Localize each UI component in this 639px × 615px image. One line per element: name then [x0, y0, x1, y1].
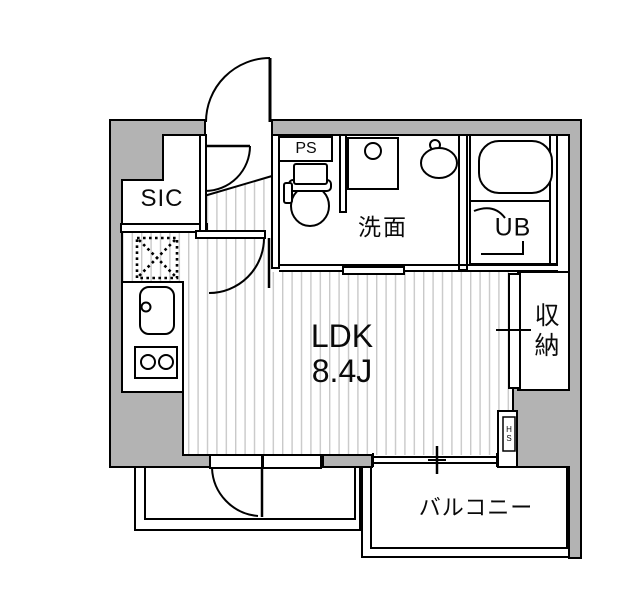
toilet-icon — [284, 164, 331, 226]
washroom-label: 洗面 — [358, 208, 408, 242]
sliding-door — [343, 267, 404, 274]
wash-basin-icon — [421, 140, 457, 178]
washing-machine-pan-icon — [348, 138, 398, 189]
balcony-label: バルコニー — [419, 490, 534, 522]
wall-hall-washroom — [272, 135, 279, 268]
gas-stove-icon — [135, 347, 177, 378]
ldk-fixed-panel — [263, 455, 321, 468]
porch-door-icon — [212, 468, 262, 517]
wall-hall-sic — [200, 135, 206, 232]
entrance-door-icon — [206, 58, 270, 122]
storage-label: 収納 — [534, 301, 561, 361]
ldk-door-panel — [210, 455, 262, 468]
sic-bottom-wall — [121, 224, 207, 232]
unit-bath-label: UB — [495, 214, 532, 243]
hs-label: HS — [505, 425, 514, 443]
ldk-label: LDK 8.4J — [311, 319, 373, 389]
floorplan: SIC PS 洗面 UB LDK 8.4J 収納 バルコニー HS — [0, 0, 639, 615]
wall-hall-ldk — [196, 231, 265, 238]
ldk-name: LDK — [311, 319, 373, 354]
wall-toilet-partition — [340, 135, 346, 212]
kitchen-sink-icon — [140, 287, 174, 334]
bathtub-icon — [479, 141, 552, 193]
sic-label: SIC — [140, 185, 183, 213]
ps-label: PS — [295, 140, 316, 158]
ldk-size: 8.4J — [311, 354, 373, 389]
outer-wall-bottom-segment — [323, 455, 372, 467]
porch-outline — [135, 467, 360, 530]
wall-washroom-bath — [459, 135, 467, 270]
